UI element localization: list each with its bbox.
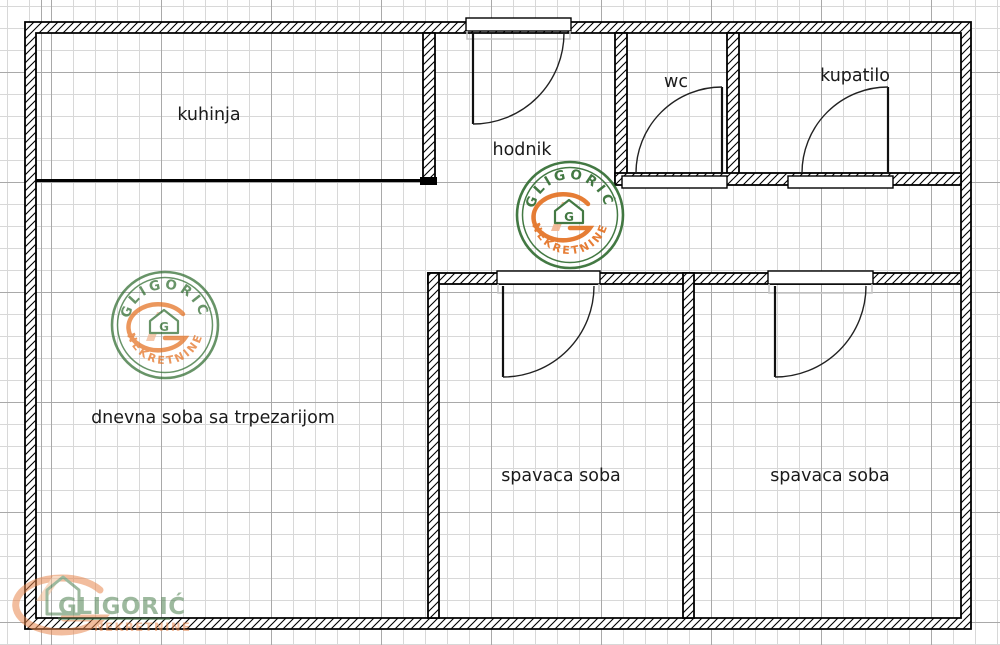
bathroom-threshold [788,176,893,188]
gligoric-stamp-left: GLIGORIĆ NEKRETNINE G [112,272,218,378]
bedroom2-door [768,271,873,377]
wall-kitchen-hall [423,33,435,183]
room-label-spavaca-soba-1: spavaca soba [501,466,621,486]
stamp-monogram: G [564,210,574,224]
stamp-monogram: G [159,320,169,334]
floor-plan-canvas: kuhinja hodnik wc kupatilo dnevna soba s… [0,0,1000,645]
room-label-hodnik: hodnik [493,140,553,160]
bedroom1-door [497,271,600,377]
wall-living-bedroom1 [428,273,439,618]
wc-threshold [622,176,727,188]
room-label-dnevna-soba: dnevna soba sa trpezarijom [91,408,335,428]
entrance-threshold [466,18,571,31]
room-label-kupatilo: kupatilo [820,66,890,86]
room-label-spavaca-soba-2: spavaca soba [770,466,890,486]
bedroom2-threshold [768,271,873,284]
wall-bedroom1-bedroom2 [683,273,694,618]
wall-wc-bathroom [727,33,739,180]
logo-brand-text: GLIGORIĆ [58,592,186,620]
wall-kitchen-partition [36,179,423,182]
gligoric-stamp-center: GLIGORIĆ NEKRETNINE G [517,162,623,268]
wall-hall-wc [615,33,627,180]
logo-tagline-text: NEKRETNINE [94,620,191,634]
bedroom2-jamb [769,284,872,293]
room-label-wc: wc [664,72,688,92]
bedroom1-threshold [497,271,600,284]
room-label-kuhinja: kuhinja [177,105,240,125]
bedroom1-jamb [498,284,599,293]
